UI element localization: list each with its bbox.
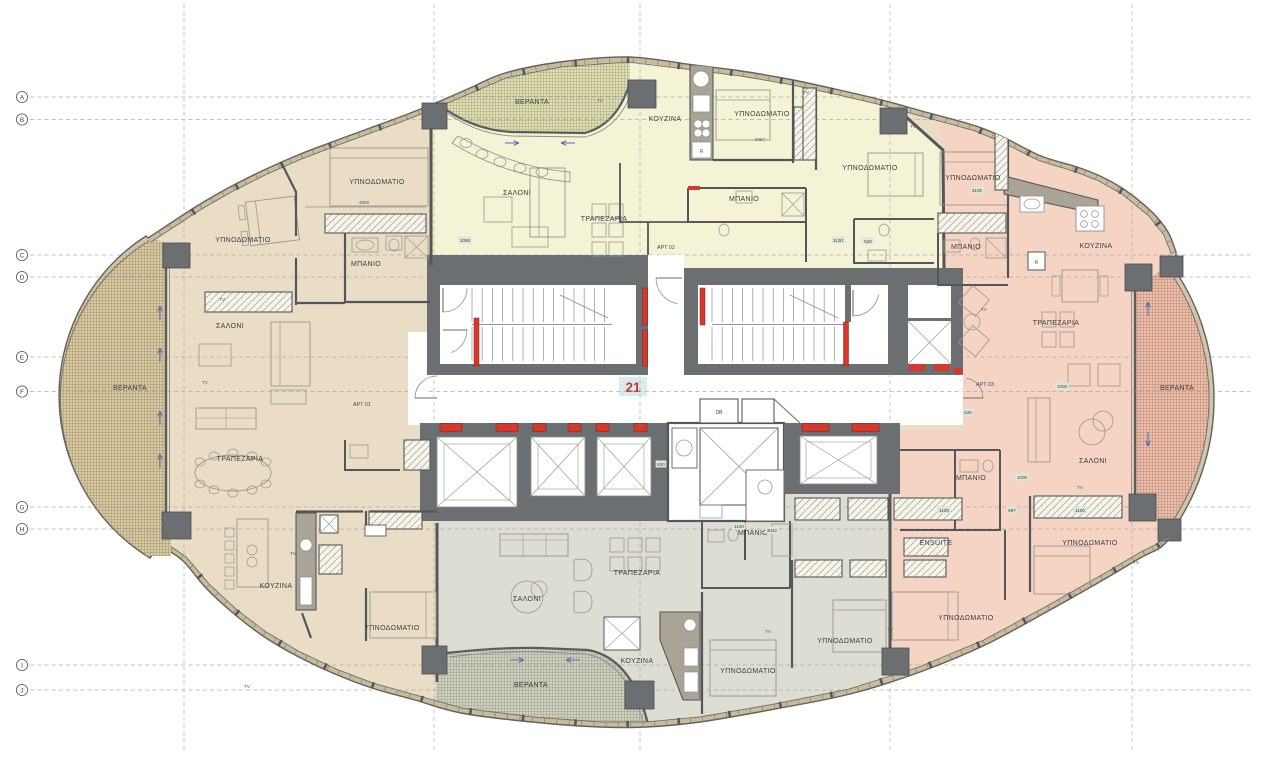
svg-text:3042: 3042 — [767, 528, 778, 533]
svg-text:APT 02: APT 02 — [657, 245, 675, 251]
svg-text:J: J — [20, 687, 23, 694]
svg-text:H: H — [20, 526, 25, 533]
svg-text:ΣΑΛΟΝΙ: ΣΑΛΟΝΙ — [503, 190, 531, 197]
svg-text:ΥΠΝΟΔΩΜΑΤΙΟ: ΥΠΝΟΔΩΜΑΤΙΟ — [349, 179, 405, 186]
svg-text:4800: 4800 — [359, 200, 370, 205]
svg-text:ΣΑΛΟΝΙ: ΣΑΛΟΝΙ — [513, 596, 541, 603]
svg-text:ENSUITE: ENSUITE — [920, 540, 953, 547]
svg-text:B: B — [20, 117, 24, 124]
svg-text:ΒΕΡΑΝΤΑ: ΒΕΡΑΝΤΑ — [515, 99, 549, 106]
svg-text:600: 600 — [657, 462, 665, 467]
svg-text:ΥΠΝΟΔΩΜΑΤΙΟ: ΥΠΝΟΔΩΜΑΤΙΟ — [842, 165, 898, 172]
svg-text:1000: 1000 — [1017, 475, 1028, 480]
svg-text:C: C — [20, 252, 25, 259]
svg-text:TV: TV — [244, 684, 251, 689]
svg-text:1130: 1130 — [833, 238, 843, 243]
svg-text:ΒΕΡΑΝΤΑ: ΒΕΡΑΝΤΑ — [1160, 385, 1194, 392]
svg-text:ΤΡΑΠΕΖΑΡΙΑ: ΤΡΑΠΕΖΑΡΙΑ — [614, 570, 661, 577]
svg-text:520: 520 — [864, 239, 872, 244]
svg-text:525: 525 — [964, 410, 972, 415]
svg-text:ΥΠΝΟΔΩΜΑΤΙΟ: ΥΠΝΟΔΩΜΑΤΙΟ — [364, 625, 420, 632]
svg-text:1000: 1000 — [1057, 384, 1068, 389]
svg-text:TV: TV — [1077, 485, 1084, 490]
svg-text:ΣΑΛΟΝΙ: ΣΑΛΟΝΙ — [1079, 458, 1107, 465]
svg-text:E: E — [20, 354, 24, 361]
svg-text:TV: TV — [202, 380, 209, 385]
svg-text:F: F — [20, 389, 24, 396]
svg-text:1100: 1100 — [939, 508, 949, 513]
svg-text:TV: TV — [910, 124, 917, 129]
svg-text:21: 21 — [625, 380, 641, 395]
svg-text:ΤΡΑΠΕΖΑΡΙΑ: ΤΡΑΠΕΖΑΡΙΑ — [217, 456, 264, 463]
svg-text:ΜΠΑΝΙΟ: ΜΠΑΝΙΟ — [351, 261, 381, 268]
svg-text:APT 01: APT 01 — [353, 402, 371, 408]
svg-text:ΒΕΡΑΝΤΑ: ΒΕΡΑΝΤΑ — [514, 682, 548, 689]
svg-text:ΒΕΡΑΝΤΑ: ΒΕΡΑΝΤΑ — [113, 385, 147, 392]
svg-text:ΚΟΥΖΙΝΑ: ΚΟΥΖΙΝΑ — [621, 658, 654, 665]
svg-text:TV: TV — [803, 90, 810, 95]
svg-text:TV: TV — [765, 629, 772, 634]
svg-text:ΣΑΛΟΝΙ: ΣΑΛΟΝΙ — [216, 323, 244, 330]
svg-text:TV: TV — [981, 307, 988, 312]
svg-text:ΤΡΑΠΕΖΑΡΙΑ: ΤΡΑΠΕΖΑΡΙΑ — [581, 216, 628, 223]
svg-text:TV: TV — [887, 627, 894, 632]
svg-text:ΥΠΝΟΔΩΜΑΤΙΟ: ΥΠΝΟΔΩΜΑΤΙΟ — [215, 237, 271, 244]
svg-text:ΚΟΥΖΙΝΑ: ΚΟΥΖΙΝΑ — [649, 116, 682, 123]
svg-text:R: R — [1035, 260, 1039, 266]
svg-text:ΤΡΑΠΕΖΑΡΙΑ: ΤΡΑΠΕΖΑΡΙΑ — [1033, 320, 1080, 327]
svg-text:I: I — [21, 662, 23, 669]
svg-text:ΜΠΑΝΙΟ: ΜΠΑΝΙΟ — [738, 530, 768, 537]
svg-text:ΜΠΑΝΙΟ: ΜΠΑΝΙΟ — [729, 196, 759, 203]
svg-text:ΜΠΑΝΙΟ: ΜΠΑΝΙΟ — [951, 244, 981, 251]
svg-text:ΜΠΑΝΙΟ: ΜΠΑΝΙΟ — [956, 475, 986, 482]
svg-text:TV: TV — [597, 98, 604, 103]
svg-text:ΚΟΥΖΙΝΑ: ΚΟΥΖΙΝΑ — [260, 583, 293, 590]
svg-text:1100: 1100 — [1075, 508, 1085, 513]
svg-text:ΥΠΝΟΔΩΜΑΤΙΟ: ΥΠΝΟΔΩΜΑΤΙΟ — [938, 615, 994, 622]
svg-text:A: A — [20, 94, 25, 101]
svg-text:TV: TV — [219, 297, 226, 302]
svg-text:ΚΟΥΖΙΝΑ: ΚΟΥΖΙΝΑ — [1080, 243, 1113, 250]
svg-text:APT 03: APT 03 — [976, 382, 994, 388]
svg-text:3100: 3100 — [972, 188, 983, 193]
svg-text:ΥΠΝΟΔΩΜΑΤΙΟ: ΥΠΝΟΔΩΜΑΤΙΟ — [1062, 540, 1118, 547]
svg-text:1050: 1050 — [460, 238, 471, 243]
svg-text:DB: DB — [716, 410, 724, 416]
svg-text:D: D — [20, 274, 25, 281]
svg-text:997: 997 — [1008, 508, 1016, 513]
svg-text:TV: TV — [1133, 560, 1140, 565]
svg-text:ΥΠΝΟΔΩΜΑΤΙΟ: ΥΠΝΟΔΩΜΑΤΙΟ — [734, 111, 790, 118]
svg-text:ΥΠΝΟΔΩΜΑΤΙΟ: ΥΠΝΟΔΩΜΑΤΙΟ — [720, 668, 776, 675]
svg-text:G: G — [20, 504, 25, 511]
svg-text:ΥΠΝΟΔΩΜΑΤΙΟ: ΥΠΝΟΔΩΜΑΤΙΟ — [817, 638, 873, 645]
svg-text:TV: TV — [290, 551, 297, 556]
svg-text:ΥΠΝΟΔΩΜΑΤΙΟ: ΥΠΝΟΔΩΜΑΤΙΟ — [945, 175, 1001, 182]
svg-text:3457: 3457 — [755, 137, 766, 142]
svg-text:1150: 1150 — [734, 524, 744, 529]
svg-text:R: R — [700, 149, 704, 155]
